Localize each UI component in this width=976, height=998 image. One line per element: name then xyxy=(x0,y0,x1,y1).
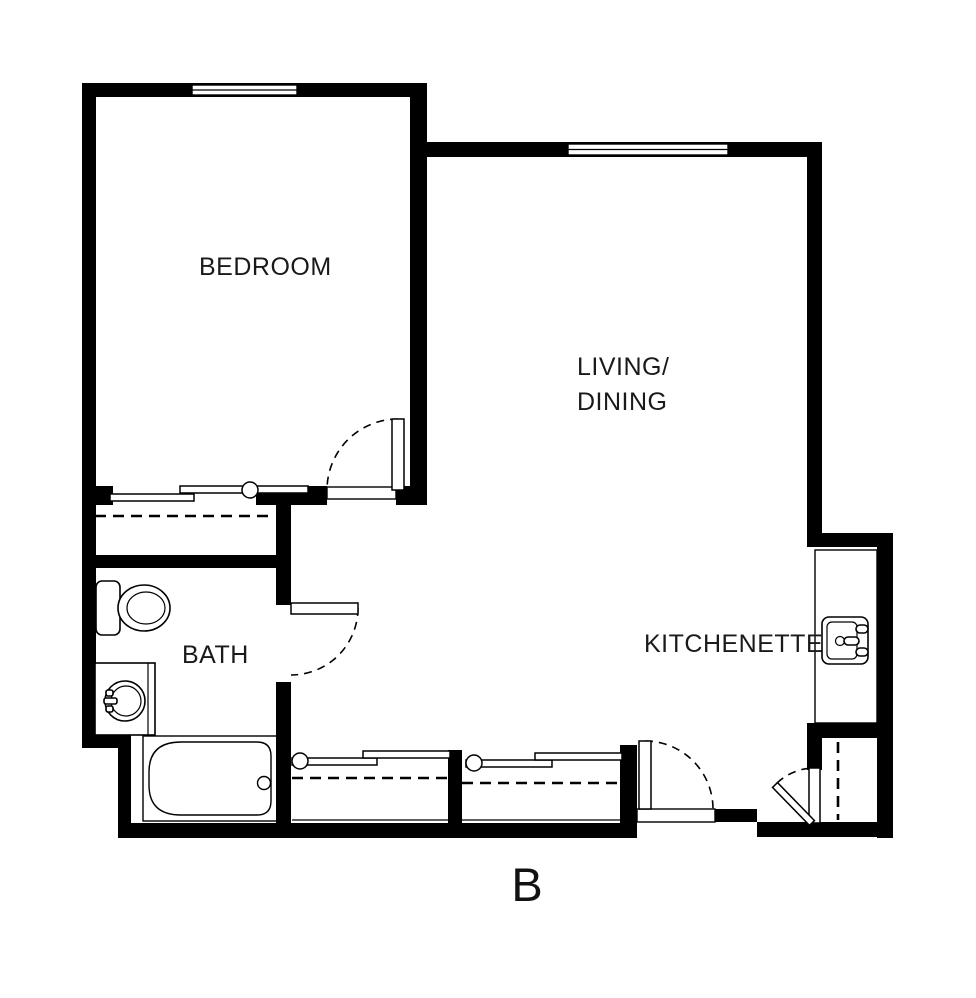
wall-bedroom-bottom-a xyxy=(82,486,113,505)
entry-door-panel xyxy=(639,741,651,809)
bath-door-panel xyxy=(291,603,358,614)
wall-entry-east xyxy=(715,809,757,822)
bath-door-swing-arc xyxy=(291,608,358,675)
living-dining-label-line2: DINING xyxy=(577,385,669,420)
wall-kitchen-mid xyxy=(807,723,877,738)
kitchen-faucet-handle-top xyxy=(856,625,868,633)
bath-label: BATH xyxy=(182,642,249,670)
hall-closet1-slider-back xyxy=(363,751,450,758)
bedroom-closet-slider-front xyxy=(110,494,194,501)
vanity-faucet-handle-bottom xyxy=(106,706,113,712)
wall-step-horizontal xyxy=(82,735,131,748)
entry-door-threshold xyxy=(637,809,715,822)
kitchen-faucet-handle-bottom xyxy=(856,648,868,656)
wall-utility-closet-west xyxy=(807,738,822,770)
bedroom-closet-knob xyxy=(242,482,258,498)
wall-closet-bottom xyxy=(82,555,290,568)
bedroom-door-swing-arc xyxy=(327,419,398,490)
wall-living-right xyxy=(807,142,822,547)
bedroom-door-panel xyxy=(392,419,404,490)
wall-bath-east-lower xyxy=(276,682,291,838)
floor-plan-unit-b: BEDROOM LIVING/ DINING BATH KITCHENETTE … xyxy=(0,0,976,998)
wall-closet-divider xyxy=(448,750,462,823)
kitchen-faucet-spout xyxy=(844,637,859,645)
wall-outer-left xyxy=(82,83,96,748)
utility-closet-door-panel-open xyxy=(773,783,815,826)
bathtub-basin xyxy=(149,742,271,815)
wall-outer-east xyxy=(877,533,893,838)
unit-letter: B xyxy=(497,862,557,908)
wall-bottom-right xyxy=(757,822,893,837)
floor-plan-drawing xyxy=(0,0,976,998)
hall-closet2-slider-back xyxy=(535,753,622,760)
kitchenette-fixtures xyxy=(815,550,877,723)
toilet-tank xyxy=(96,581,120,635)
wall-bath-east-upper xyxy=(276,505,291,605)
walls xyxy=(82,83,893,838)
utility-closet-door-panel-closed xyxy=(809,768,820,823)
kitchenette-label: KITCHENETTE xyxy=(644,631,823,659)
vanity-faucet-spout xyxy=(104,698,117,704)
wall-bottom-main xyxy=(118,823,637,838)
bathtub-deck xyxy=(143,736,277,821)
bathtub-drain xyxy=(258,777,271,790)
living-dining-label-line1: LIVING/ xyxy=(577,350,669,385)
hall-closet1-knob xyxy=(292,753,308,769)
entry-door-swing-arc xyxy=(645,741,713,809)
living-dining-label: LIVING/ DINING xyxy=(577,350,669,420)
hall-closet2-knob xyxy=(466,755,482,771)
bedroom-door-threshold xyxy=(327,487,396,499)
bedroom-label: BEDROOM xyxy=(199,254,332,282)
vanity-faucet-handle-top xyxy=(106,690,113,696)
